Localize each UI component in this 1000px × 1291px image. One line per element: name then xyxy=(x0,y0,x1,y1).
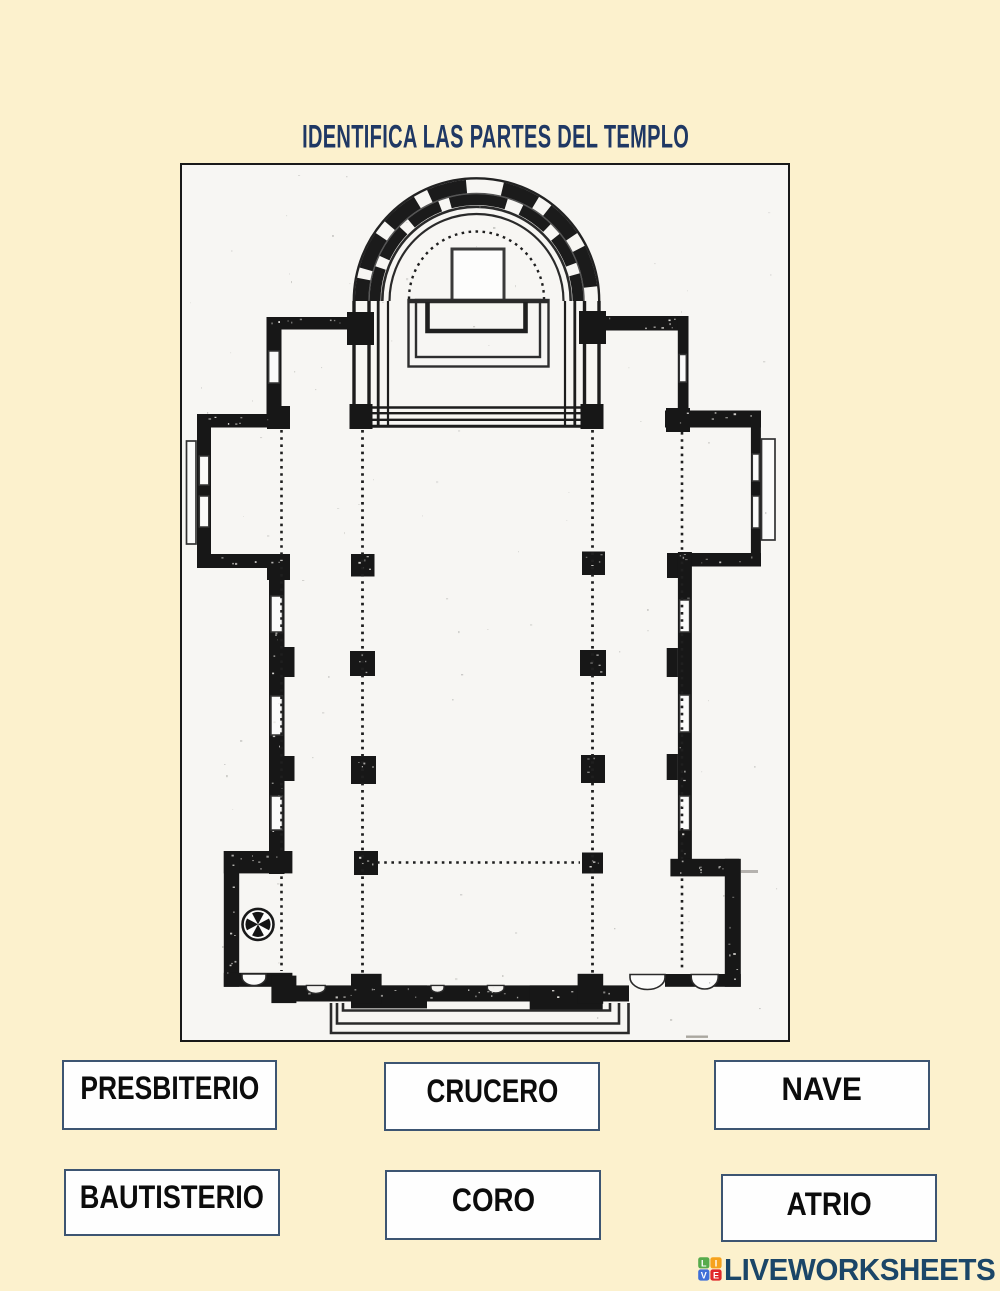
svg-text:V: V xyxy=(701,1271,707,1281)
svg-text:I: I xyxy=(715,1258,718,1268)
svg-text:E: E xyxy=(713,1271,719,1281)
svg-text:L: L xyxy=(701,1258,707,1268)
